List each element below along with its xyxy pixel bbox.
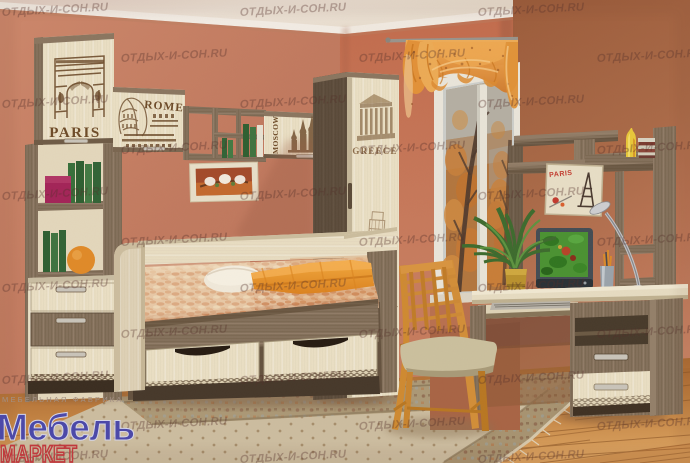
svg-text:МЕБЕЛЬНАЯ ФАБРИКА: МЕБЕЛЬНАЯ ФАБРИКА bbox=[2, 395, 124, 404]
svg-text:МАРКЕТ: МАРКЕТ bbox=[0, 441, 77, 463]
